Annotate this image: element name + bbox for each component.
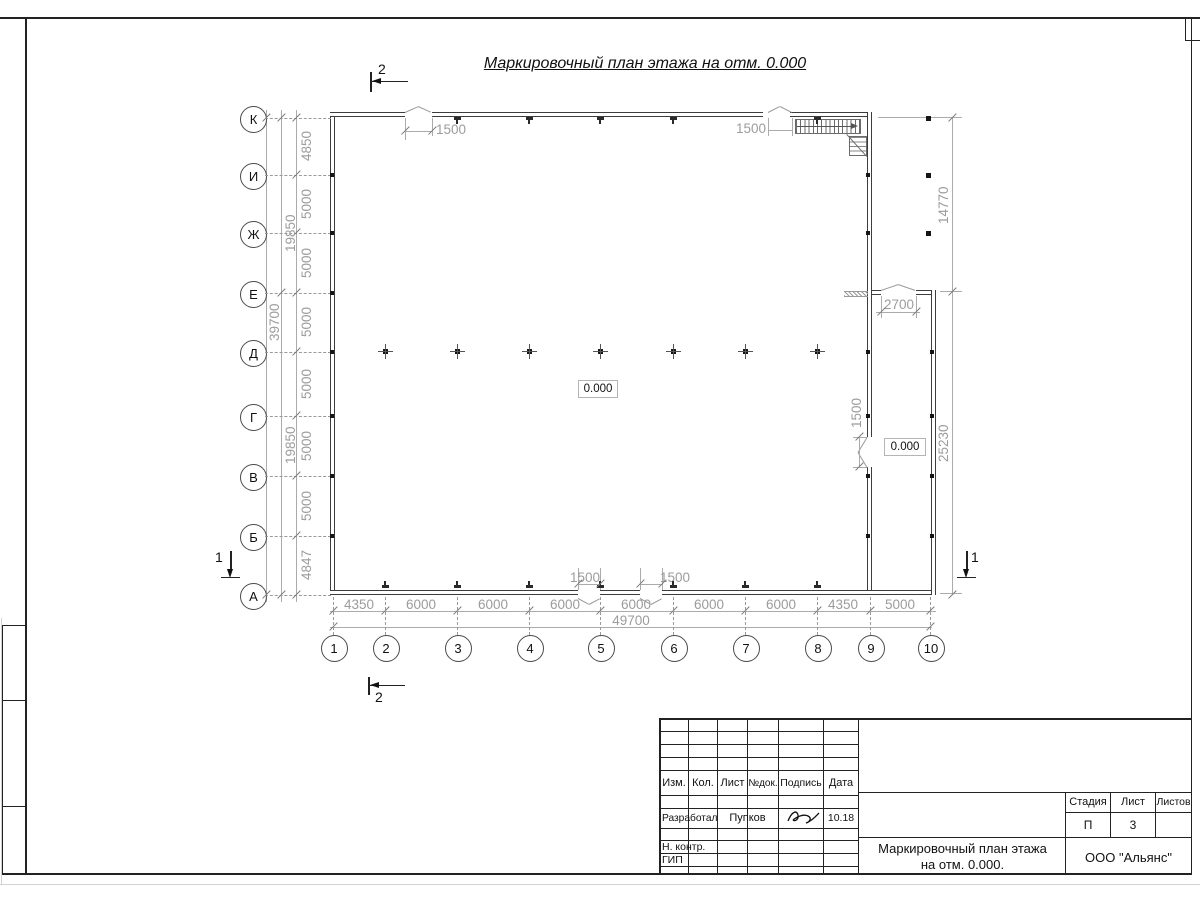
titleblock-col-ndoc: №док. [748,774,778,792]
titleblock-sheets-label: Листов [1156,794,1191,810]
titleblock-line [823,718,824,874]
column-dot [926,116,931,121]
column-dot [866,231,870,235]
column-dot [866,534,870,538]
axis-line [673,597,674,635]
titleblock-developer-label: Разработал [662,810,718,826]
section-number-right: 1 [971,549,979,565]
elevation-mark-main: 0.000 [578,380,618,398]
col-axis-bubble: 8 [805,635,832,662]
frame-top [0,17,1200,19]
dim-line-opening [768,130,792,131]
col-axis-bubble: 4 [517,635,544,662]
titleblock-gip-label: ГИП [662,853,718,866]
section-number-left: 1 [215,549,223,565]
wall-top [330,112,405,117]
column-dot [330,534,334,538]
axis-line [265,595,331,596]
row-axis-bubble: Г [240,404,267,431]
col-axis-bubble: 2 [373,635,400,662]
opening-mark [405,106,418,113]
column-dot [926,173,931,178]
column-dot [926,231,931,236]
column-mark [383,349,388,354]
opening-mark [768,106,780,113]
titleblock-col-list: Лист [718,774,747,792]
titleblock-line [659,866,859,867]
column-dot [866,414,870,418]
titleblock-line [858,792,1192,793]
column-dot [330,291,334,295]
titleblock-developer-name: Пупков [717,810,778,826]
column-stub [670,585,677,588]
column-mark [598,349,603,354]
titleblock-line [659,757,859,758]
dim-label: 6000 [759,597,803,612]
dim-label: 6000 [687,597,731,612]
axis-line [930,597,931,635]
axis-line [265,352,331,353]
axis-line [385,597,386,635]
column-stub [454,585,461,588]
axis-line [265,536,331,537]
titleblock-stage-value: П [1066,814,1110,835]
dim-label: 14770 [936,175,953,235]
ext-line [878,117,962,118]
titleblock-sheet-label: Лист [1111,794,1155,810]
column-mark [671,349,676,354]
elevation-mark-annex: 0.000 [884,438,926,456]
dim-label: 5000 [299,297,316,347]
column-stub [454,117,461,120]
dim-label: 5000 [299,481,316,531]
row-axis-bubble: Д [240,340,267,367]
frame-right [1191,17,1192,875]
opening-dim-label: 1500 [728,121,766,136]
axis-line [529,597,530,635]
opening-dim-label: 1500 [849,394,866,432]
dim-label: 6000 [543,597,587,612]
wall-stub-hatched [844,291,868,297]
section-arrow-icon [372,78,381,84]
corner-box-line-h [1185,40,1200,41]
titleblock-line [659,795,859,796]
titleblock-doc-title-line2: на отм. 0.000. [860,856,1065,872]
corner-box-line-v [1185,17,1186,40]
section-mark-line [957,577,976,578]
opening-dim-label: 2700 [884,297,914,312]
opening-mark [881,284,898,291]
titleblock-col-kol: Кол. [689,774,717,792]
dim-label: 5000 [299,179,316,229]
ext-line [853,467,867,468]
titleblock-line [858,837,1192,838]
column-dot [330,231,334,235]
dim-label: 19850 [283,205,300,261]
ext-line [432,118,433,136]
ext-line [916,296,917,318]
opening-mark [418,106,431,113]
titleblock-line [659,744,859,745]
column-dot [330,414,334,418]
column-dot [930,414,934,418]
col-axis-bubble: 3 [445,635,472,662]
row-axis-bubble: Ж [240,221,267,248]
titleblock-line [747,718,748,874]
column-stub [670,117,677,120]
wall-top [790,112,872,117]
dim-label: 39700 [267,294,284,350]
section-mark-line [221,577,240,578]
dim-label: 4350 [821,597,865,612]
axis-line [457,597,458,635]
axis-line [817,597,818,635]
titleblock-border [659,718,1192,720]
column-stub [597,117,604,120]
stair-arrow-icon [851,123,858,129]
titleblock-line [778,718,779,874]
column-dot [930,350,934,354]
section-number-bottom: 2 [375,689,383,705]
wall-bottom [600,590,640,595]
titleblock-line [659,828,859,829]
titleblock-col-data: Дата [824,774,858,792]
dim-label: 5000 [299,238,316,288]
row-axis-bubble: В [240,464,267,491]
row-axis-bubble: Е [240,281,267,308]
stair-arrow-line [797,126,851,127]
drawing-title: Маркировочный план этажа на отм. 0.000 [420,55,870,73]
column-stub [526,117,533,120]
axis-line [745,597,746,635]
ext-line [768,118,769,136]
column-stub [742,585,749,588]
wall-bottom [662,590,936,595]
titleblock-ncontrol-label: Н. контр. [662,840,718,853]
opening-dim-label: 1500 [436,122,466,137]
dim-label: 25230 [936,413,953,473]
signature [785,808,821,826]
section-mark-line [966,551,968,571]
wall-right-main [867,112,872,437]
dim-line-left-segments [296,110,297,602]
col-axis-bubble: 10 [918,635,945,662]
column-mark [743,349,748,354]
col-axis-bubble: 7 [733,635,760,662]
margin-box-line [2,700,25,701]
column-stub [814,117,821,120]
wall-right-main [867,467,872,590]
col-axis-bubble: 5 [588,635,615,662]
dim-label: 4350 [337,597,381,612]
row-axis-bubble: И [240,163,267,190]
titleblock-line [659,770,859,771]
dim-label: 49700 [601,613,661,628]
column-dot [330,173,334,177]
wall-annex-top [872,290,881,295]
col-axis-bubble: 1 [321,635,348,662]
column-dot [930,474,934,478]
section-number-top: 2 [378,61,386,77]
titleblock-col-podpis: Подпись [779,774,823,792]
ext-line [881,296,882,318]
axis-line [265,476,331,477]
dim-label: 5000 [299,421,316,471]
ext-line [640,568,641,590]
titleblock-sheet-value: 3 [1111,814,1155,835]
titleblock-company: ООО "Альянс" [1067,844,1190,870]
row-axis-bubble: Б [240,524,267,551]
drawing-sheet: Маркировочный план этажа на отм. 0.000 [0,0,1200,900]
column-mark [815,349,820,354]
dim-label: 19850 [283,417,300,473]
column-dot [866,350,870,354]
col-axis-bubble: 6 [661,635,688,662]
titleblock-line [1065,812,1192,813]
opening-dim-label: 1500 [570,570,600,585]
column-dot [866,474,870,478]
column-stub [382,585,389,588]
margin-box-line [2,625,3,874]
axis-line [870,597,871,635]
col-axis-bubble: 9 [858,635,885,662]
section-arrow-icon [370,682,379,688]
titleblock-col-izm: Изм. [660,774,688,792]
opening-mark [780,106,792,113]
column-dot [866,173,870,177]
dim-label: 4850 [299,121,316,171]
ext-line [853,437,867,438]
titleblock-line [659,808,859,809]
dim-line-opening [859,437,860,467]
dim-label: 5000 [878,597,922,612]
dim-line-opening [405,131,432,132]
dim-label: 5000 [299,359,316,409]
column-stub [814,585,821,588]
dim-line-left-subtotal [281,110,282,602]
dim-label: 6000 [399,597,443,612]
titleblock-line [659,731,859,732]
dim-label: 4847 [299,540,316,590]
sheet-edge-bottom [0,884,1200,885]
column-mark [527,349,532,354]
titleblock-border [659,718,661,874]
margin-box-line [2,806,25,807]
titleblock-doc-title-line1: Маркировочный план этажа [860,840,1065,856]
section-mark-line [230,551,232,571]
column-dot [330,474,334,478]
wall-bottom [330,590,578,595]
titleblock-date: 10.18 [824,810,858,826]
opening-dim-label: 1500 [660,570,690,585]
opening-mark [589,598,600,605]
frame-left [25,17,27,875]
ext-line [792,118,793,136]
column-dot [930,534,934,538]
dim-label: 6000 [614,597,658,612]
axis-line [265,175,331,176]
axis-line [333,597,334,635]
column-mark [455,349,460,354]
axis-line [265,118,331,119]
dim-label: 6000 [471,597,515,612]
opening-mark [898,284,915,291]
column-dot [330,350,334,354]
margin-box-line [2,625,25,626]
titleblock-stage-label: Стадия [1066,794,1110,810]
column-stub [526,585,533,588]
frame-bottom [2,873,1192,875]
